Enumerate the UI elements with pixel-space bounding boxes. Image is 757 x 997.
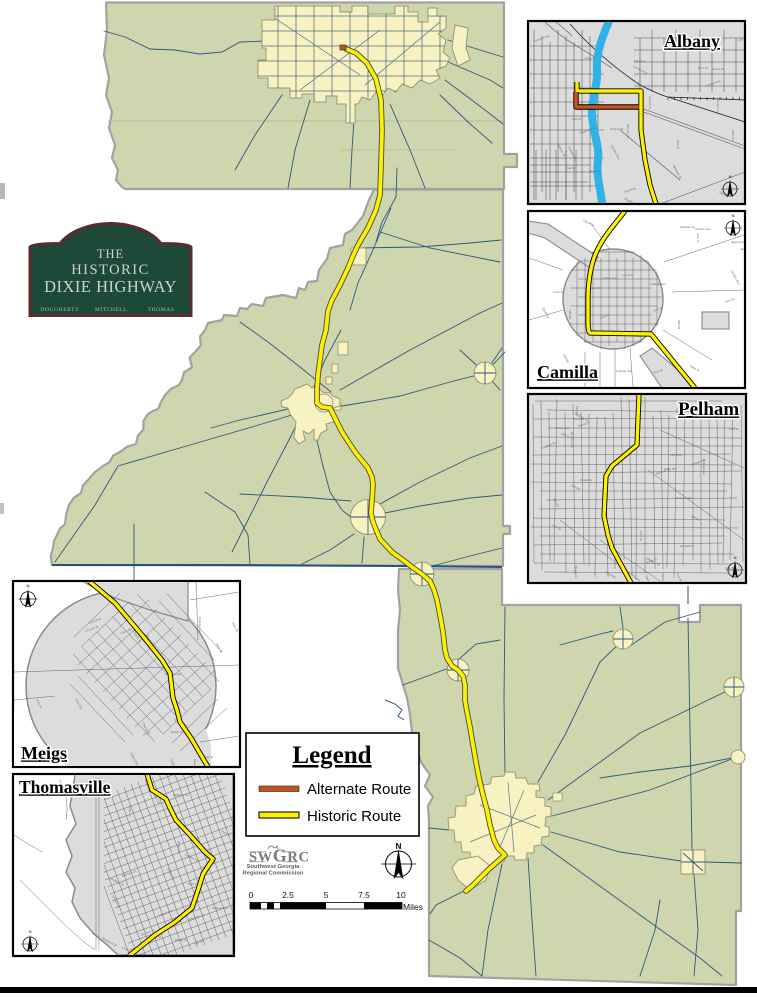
svg-text:Miles: Miles (403, 902, 423, 912)
svg-text:N: N (729, 174, 732, 179)
svg-text:Mill Rd: Mill Rd (677, 320, 681, 329)
svg-text:Love St: Love St (623, 273, 633, 277)
svg-text:Depot St: Depot St (177, 841, 181, 853)
svg-text:Albany: Albany (664, 31, 720, 51)
svg-text:N: N (732, 213, 735, 218)
svg-text:Cotton Ave: Cotton Ave (555, 426, 570, 430)
svg-text:Depot St: Depot St (712, 67, 724, 71)
svg-text:Historic Route: Historic Route (307, 808, 401, 825)
svg-text:N: N (26, 584, 29, 589)
svg-text:College Ave: College Ave (198, 617, 202, 633)
svg-text:Oak St: Oak St (725, 566, 734, 570)
svg-text:Dawson Rd: Dawson Rd (676, 496, 692, 500)
svg-text:Hansell St: Hansell St (680, 544, 694, 548)
svg-text:Webster St: Webster St (680, 225, 695, 229)
svg-text:Flint Ave: Flint Ave (670, 453, 682, 457)
svg-text:Broad St: Broad St (580, 478, 592, 482)
svg-text:Flint Ave: Flint Ave (589, 169, 601, 173)
svg-text:College Ave: College Ave (212, 906, 228, 910)
svg-text:Gordon Ave: Gordon Ave (695, 227, 711, 231)
svg-text:SWGRC: SWGRC (249, 846, 310, 866)
svg-text:Gordon Ave: Gordon Ave (570, 432, 574, 448)
svg-text:7.5: 7.5 (358, 890, 370, 900)
svg-text:Thomasville: Thomasville (19, 777, 111, 797)
svg-text:Flint Ave: Flint Ave (731, 130, 735, 142)
svg-text:N: N (396, 842, 402, 851)
svg-text:Love St: Love St (585, 56, 595, 60)
svg-text:Cairo Rd: Cairo Rd (664, 467, 676, 471)
svg-text:Church St: Church St (610, 127, 624, 131)
svg-text:Legend: Legend (292, 742, 371, 769)
svg-text:HISTORIC: HISTORIC (71, 262, 150, 278)
svg-text:Webster St: Webster St (661, 573, 665, 588)
svg-text:Pine St: Pine St (639, 531, 643, 541)
svg-text:Church St: Church St (648, 96, 652, 110)
svg-text:Southwest Georgia: Southwest Georgia (247, 864, 301, 870)
svg-text:Pine St: Pine St (696, 233, 700, 243)
svg-text:N: N (29, 929, 32, 934)
svg-text:College Ave: College Ave (702, 459, 706, 475)
svg-text:Webster St: Webster St (173, 793, 188, 797)
svg-text:College Ave: College Ave (650, 282, 666, 286)
svg-text:Pine St: Pine St (729, 427, 739, 431)
svg-text:Oak St: Oak St (676, 140, 680, 149)
svg-text:Depot St: Depot St (574, 566, 578, 578)
svg-text:Alternate Route: Alternate Route (307, 781, 411, 798)
svg-text:MITCHELL: MITCHELL (95, 307, 127, 313)
svg-text:Monroe St: Monroe St (626, 124, 630, 138)
svg-text:Love St: Love St (553, 290, 563, 294)
svg-text:Pelham: Pelham (678, 399, 739, 420)
svg-text:Camilla: Camilla (537, 362, 598, 382)
svg-text:Pine St: Pine St (698, 66, 708, 70)
svg-text:DIXIE HIGHWAY: DIXIE HIGHWAY (44, 277, 177, 296)
svg-text:Depot St: Depot St (171, 730, 183, 734)
svg-text:DOUGHERTY: DOUGHERTY (41, 307, 80, 313)
svg-text:Cotton Ave: Cotton Ave (602, 276, 617, 280)
svg-text:Flint Ave: Flint Ave (634, 59, 646, 63)
svg-text:THE: THE (97, 247, 124, 261)
svg-text:Mill Rd: Mill Rd (568, 310, 572, 319)
svg-text:Broad St: Broad St (175, 938, 187, 942)
svg-text:THOMAS: THOMAS (148, 307, 175, 313)
svg-text:Oak St: Oak St (572, 117, 581, 121)
svg-text:Regional Commission: Regional Commission (243, 871, 304, 877)
svg-text:Cotton Ave: Cotton Ave (716, 100, 720, 115)
svg-text:0: 0 (249, 890, 254, 900)
svg-text:Depot St: Depot St (128, 805, 132, 817)
svg-text:Oak St: Oak St (566, 166, 575, 170)
svg-text:5: 5 (324, 890, 329, 900)
svg-text:2.5: 2.5 (282, 890, 294, 900)
svg-text:College Ave: College Ave (616, 369, 632, 373)
svg-text:N: N (734, 555, 737, 560)
svg-text:10: 10 (396, 890, 406, 900)
svg-text:Meigs: Meigs (21, 743, 67, 763)
svg-text:Jackson St: Jackson St (740, 247, 755, 251)
